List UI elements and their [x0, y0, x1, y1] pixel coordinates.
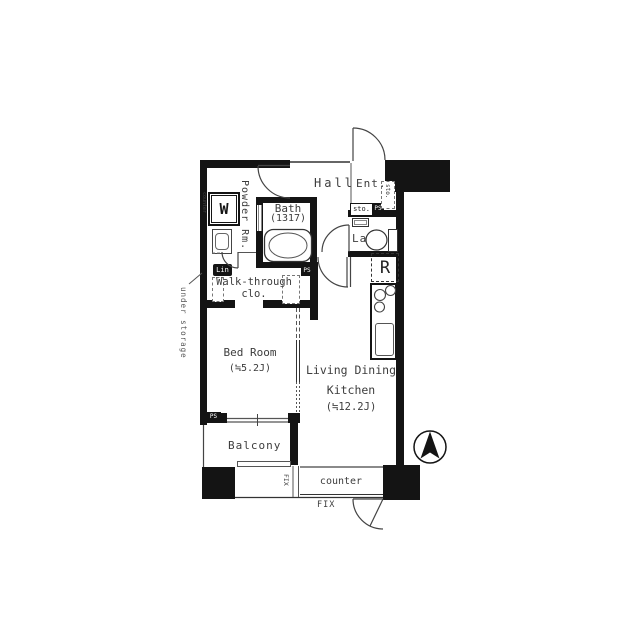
- plan-linework: [0, 0, 640, 640]
- refrigerator-label: R: [380, 258, 390, 278]
- room-label-ldk-2: Kitchen: [306, 383, 396, 397]
- toilet-tank: [388, 229, 398, 252]
- room-label-powder: Powder Rm.: [239, 180, 250, 250]
- wall-top-left: [205, 160, 290, 168]
- pillar-bottom-left: [202, 467, 235, 499]
- sliding-partition: [297, 308, 300, 414]
- laundry-counter-label: counter: [201, 192, 207, 224]
- lav-door-arc: [322, 225, 349, 252]
- balcony-ledge: [237, 461, 291, 467]
- room-label-balcony: Balcony: [228, 439, 281, 452]
- room-label-closet-2: clo.: [211, 288, 297, 300]
- kitchen-sink: [375, 323, 394, 356]
- room-label-lavatory: Lav: [352, 232, 375, 245]
- linen-label: Lin: [216, 267, 229, 274]
- pillar-bottom-right: [383, 465, 420, 500]
- wall-bath-right: [310, 197, 317, 268]
- storage-box: sto.: [350, 203, 373, 216]
- room-size-bedroom: (≒5.2J): [220, 363, 280, 374]
- room-label-bedroom: Bed Room: [220, 346, 280, 359]
- lav-shelf: [352, 218, 369, 227]
- washer-pan: W: [208, 192, 240, 226]
- bathtub-icon: [265, 230, 312, 262]
- storage-box-label: sto.: [353, 206, 370, 213]
- fix-bottom-label: FIX: [317, 500, 335, 510]
- wall-balcony-east: [290, 413, 298, 465]
- powder-door-arc: [258, 166, 290, 198]
- room-label-closet-1: Walk-through: [211, 276, 297, 288]
- pipe-space-bath: PS: [301, 266, 313, 276]
- pipe-space-bedroom-label: PS: [210, 414, 217, 420]
- bath-door-gap: [257, 205, 262, 231]
- room-label-entrance: Ent.: [356, 177, 387, 190]
- south-door-arc: [353, 499, 383, 529]
- under-storage-label: under storage: [179, 287, 188, 359]
- compass-icon: [414, 431, 446, 463]
- refrigerator-box: R: [371, 253, 399, 282]
- linen-box: Lin: [213, 264, 232, 276]
- room-label-hall: Hall: [314, 176, 355, 190]
- washer-label: W: [219, 200, 228, 218]
- washbasin: [212, 229, 232, 254]
- counter-label: counter: [315, 476, 367, 487]
- entrance-door-arc: [353, 128, 385, 160]
- pipe-space-bedroom: PS: [206, 412, 221, 421]
- floor-plan: W counter Lin sto. PS sto. PS PS R: [0, 0, 640, 640]
- south-door-leaf: [370, 499, 383, 526]
- room-size-ldk: (≒12.2J): [306, 401, 396, 413]
- kitchen-counter: [370, 283, 397, 360]
- pipe-space-bath-label: PS: [303, 268, 310, 274]
- room-size-bath: (1317): [264, 213, 312, 224]
- ldk-door-arc: [318, 257, 348, 287]
- fix-side-label: FIX: [282, 474, 290, 486]
- room-label-ldk-1: Living Dining: [306, 363, 396, 377]
